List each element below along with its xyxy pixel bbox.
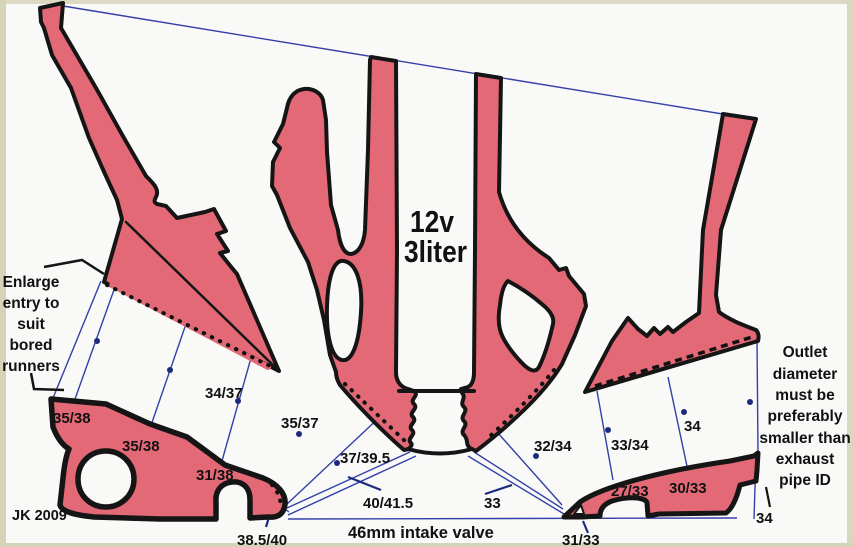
svg-text:exhaust: exhaust bbox=[776, 451, 835, 468]
svg-text:JK 2009: JK 2009 bbox=[12, 508, 67, 524]
svg-text:33/34: 33/34 bbox=[611, 437, 649, 454]
svg-text:27/33: 27/33 bbox=[611, 483, 649, 500]
svg-text:35/38: 35/38 bbox=[122, 438, 160, 455]
svg-text:Enlarge: Enlarge bbox=[3, 274, 60, 291]
svg-text:33: 33 bbox=[484, 495, 501, 512]
svg-text:preferably: preferably bbox=[768, 408, 843, 425]
svg-text:34: 34 bbox=[684, 418, 701, 435]
svg-text:35/37: 35/37 bbox=[281, 415, 319, 432]
svg-text:31/33: 31/33 bbox=[562, 532, 600, 547]
svg-text:37/39.5: 37/39.5 bbox=[340, 450, 390, 467]
svg-text:40/41.5: 40/41.5 bbox=[363, 495, 413, 512]
svg-text:diameter: diameter bbox=[773, 366, 838, 383]
svg-text:46mm intake valve: 46mm intake valve bbox=[348, 524, 494, 542]
svg-text:entry to: entry to bbox=[3, 295, 60, 312]
svg-text:38.5/40: 38.5/40 bbox=[237, 532, 287, 547]
svg-text:30/33: 30/33 bbox=[669, 480, 707, 497]
svg-text:must be: must be bbox=[775, 387, 835, 404]
svg-text:34: 34 bbox=[756, 510, 773, 527]
svg-text:32/34: 32/34 bbox=[534, 438, 572, 455]
svg-text:35/38: 35/38 bbox=[53, 410, 91, 427]
svg-text:3liter: 3liter bbox=[404, 234, 467, 269]
svg-text:34/37: 34/37 bbox=[205, 385, 243, 402]
svg-text:smaller than: smaller than bbox=[759, 430, 850, 447]
svg-text:31/38: 31/38 bbox=[196, 467, 234, 484]
svg-text:bored: bored bbox=[9, 337, 52, 354]
svg-text:pipe ID: pipe ID bbox=[779, 472, 831, 489]
svg-text:Outlet: Outlet bbox=[783, 344, 828, 361]
svg-text:runners: runners bbox=[2, 358, 60, 375]
svg-text:suit: suit bbox=[17, 316, 45, 333]
